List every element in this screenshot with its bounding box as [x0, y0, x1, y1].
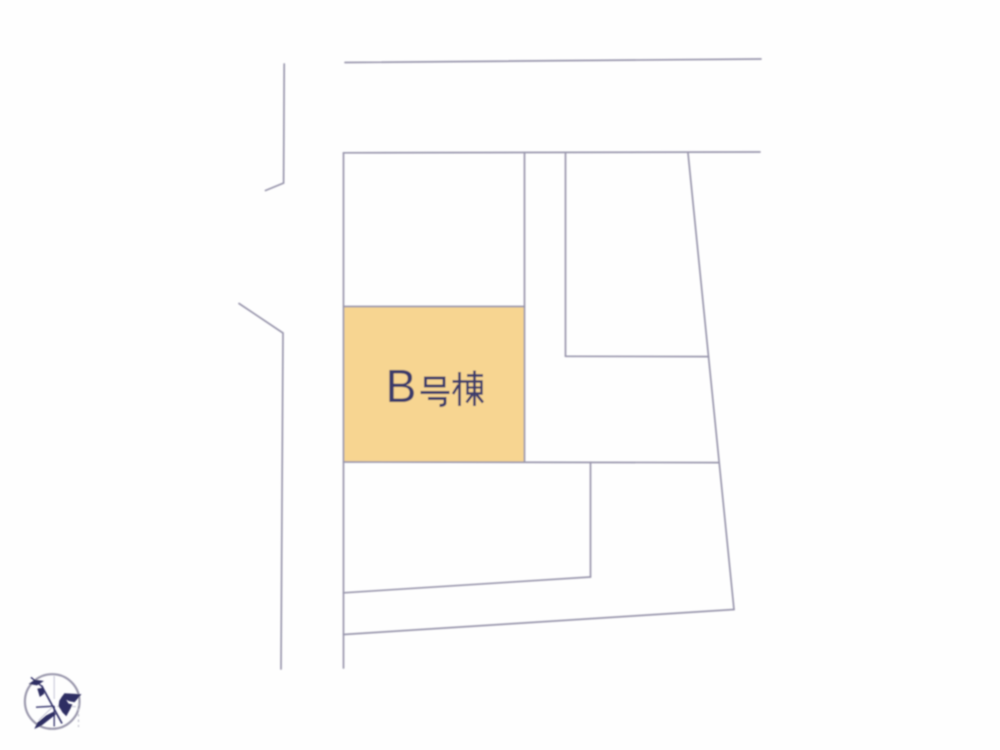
svg-text:B: B [386, 360, 417, 412]
